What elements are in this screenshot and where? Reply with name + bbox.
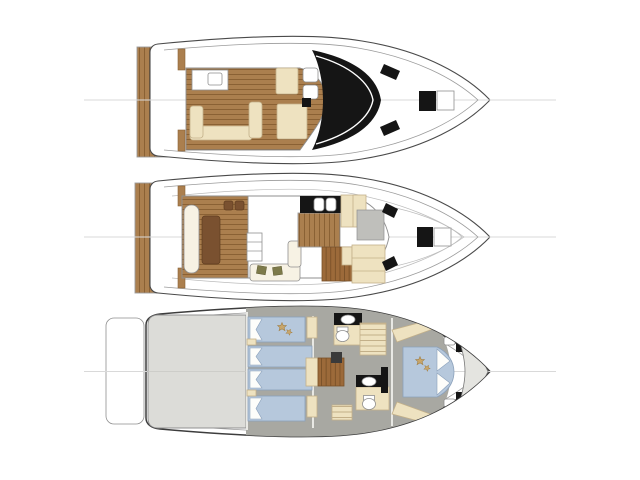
main-deck-plan: [84, 173, 556, 300]
forward-head: [334, 313, 364, 345]
cockpit-chair: [224, 201, 233, 210]
yacht-deck-plans-image: [0, 0, 640, 480]
helm-console: [357, 210, 384, 240]
foredeck-hatch: [417, 227, 433, 247]
cockpit-chair: [235, 201, 244, 210]
cabinet: [307, 396, 317, 417]
bench-seat-forward: [276, 68, 298, 94]
teak-step: [178, 49, 185, 70]
sofa-pillow: [272, 266, 282, 275]
lower-deck-interior: [148, 306, 488, 438]
double-berth: [248, 369, 312, 390]
galley-floor: [298, 213, 340, 247]
deck-plans-svg: [0, 0, 640, 480]
cockpit-table: [202, 216, 220, 264]
nightstand: [247, 390, 256, 396]
anchor-locker: [437, 91, 454, 110]
companionway-steps: [360, 323, 386, 355]
sink: [341, 315, 355, 324]
salon-cabinet: [247, 233, 262, 261]
foredeck-hatch: [419, 91, 436, 111]
sink: [362, 377, 376, 386]
galley-cooktop: [326, 198, 336, 211]
sun-pad: [192, 70, 228, 90]
lower-deck-plan: [84, 306, 556, 438]
nightstand: [444, 399, 455, 407]
guest-berth: [248, 396, 305, 421]
master-v-berth: [403, 347, 454, 397]
flybridge-deck-plan: [84, 36, 556, 163]
cabinet: [307, 317, 317, 338]
cockpit-bench: [184, 205, 199, 273]
bench-seat-aft: [277, 104, 307, 139]
galley-sink: [314, 198, 324, 211]
toilet-bowl: [363, 399, 376, 410]
corridor-hatch: [331, 352, 342, 363]
anchor-locker: [434, 228, 451, 246]
stair-landing: [306, 358, 318, 386]
tv-panel: [381, 367, 388, 393]
steps: [332, 405, 352, 420]
double-berth: [248, 346, 312, 367]
teak-step: [178, 130, 185, 151]
guest-berth: [248, 317, 305, 342]
dinette-seat: [342, 247, 352, 265]
nightstand: [247, 339, 256, 345]
toilet-bowl: [336, 331, 349, 342]
dinette: [352, 245, 385, 283]
companionway-hatch: [302, 98, 311, 107]
sofa-pillow: [256, 265, 266, 274]
